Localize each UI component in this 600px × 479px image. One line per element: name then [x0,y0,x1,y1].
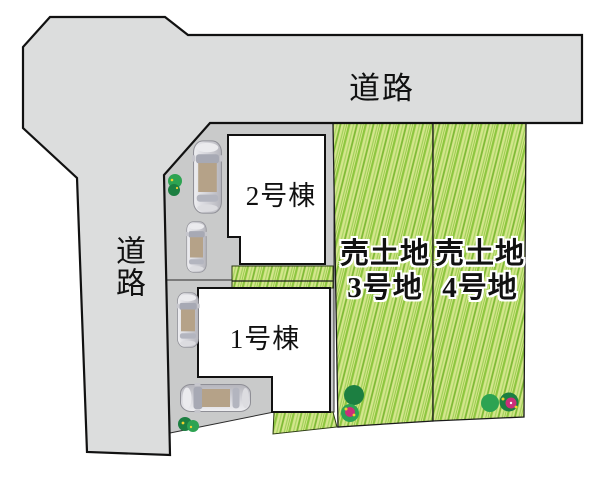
car-icon [192,141,223,213]
lot-3-label: 売土地 3号地 [333,237,437,305]
car-icon [186,222,208,273]
lot-3-label-line2: 3号地 [333,271,437,305]
lot-3-label-line1: 売土地 [333,237,437,271]
garden-strip-building-1 [273,412,337,434]
car-icon [176,293,199,347]
lot-4-label: 売土地 4号地 [428,237,532,305]
garden-strip-building-2 [232,266,333,288]
lot-4-label-line1: 売土地 [428,237,532,271]
building-1-label: 1号棟 [215,317,315,356]
lot-4-label-line2: 4号地 [428,271,532,305]
road-label-left: 道路 [105,235,149,299]
site-plan: 道路 道路 2号棟 1号棟 売土地 3号地 売土地 4号地 [0,0,600,479]
road-label-top: 道路 [332,63,432,108]
building-2-label: 2号棟 [231,174,331,213]
car-icon [181,383,251,413]
